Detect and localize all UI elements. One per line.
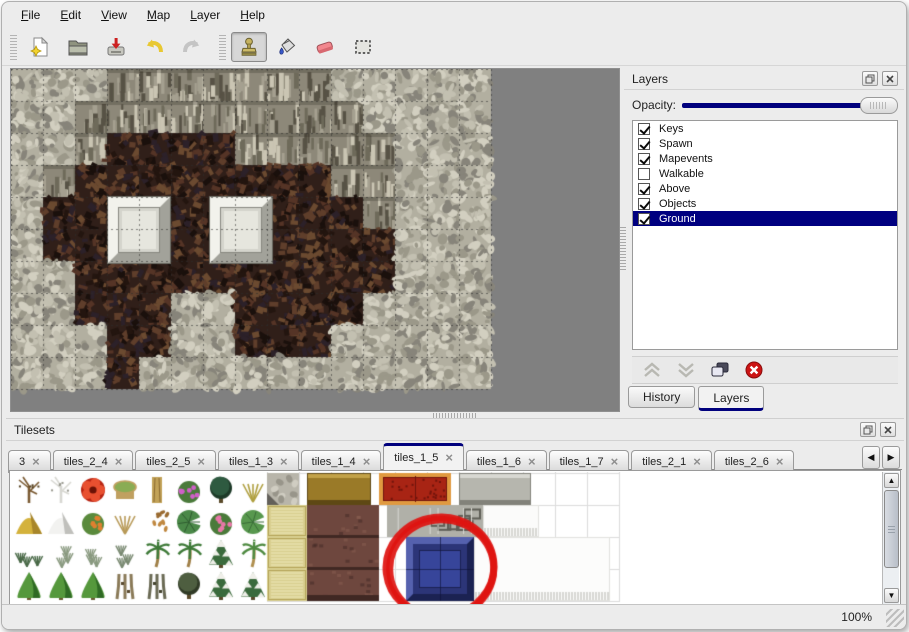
redo-button[interactable]	[174, 32, 210, 62]
layer-name: Spawn	[659, 138, 693, 150]
dock-tabs: HistoryLayers	[628, 386, 764, 412]
tab-close-icon[interactable]: ×	[611, 457, 619, 467]
scroll-up-icon[interactable]: ▲	[884, 473, 899, 488]
layer-visibility-checkbox[interactable]	[638, 153, 650, 165]
menu-item-edit[interactable]: Edit	[51, 5, 90, 25]
layer-buttons-bar	[632, 356, 898, 384]
tileset-tab-label: tiles_2_6	[725, 456, 769, 468]
layer-name: Walkable	[659, 168, 704, 180]
menu-item-map[interactable]: Map	[138, 5, 179, 25]
tileset-tab-label: tiles_1_7	[560, 456, 604, 468]
tilesets-panel: Tilesets 3×tiles_2_4×tiles_2_5×tiles_1_3…	[6, 418, 904, 608]
move-layer-up-button[interactable]	[640, 359, 664, 381]
opacity-slider-track[interactable]	[682, 103, 864, 108]
open-file-button[interactable]	[60, 32, 96, 62]
status-bar: 100%	[2, 604, 906, 629]
menu-item-layer[interactable]: Layer	[181, 5, 229, 25]
menu-item-file[interactable]: File	[12, 5, 49, 25]
layers-panel-header: Layers	[624, 68, 904, 90]
save-file-button[interactable]	[98, 32, 134, 62]
layer-row-spawn[interactable]: Spawn	[633, 136, 897, 151]
layer-visibility-checkbox[interactable]	[638, 123, 650, 135]
layer-name: Ground	[659, 213, 696, 225]
tab-close-icon[interactable]: ×	[528, 457, 536, 467]
layer-name: Keys	[659, 123, 683, 135]
duplicate-layer-button[interactable]	[708, 359, 732, 381]
layers-panel-title: Layers	[632, 72, 668, 86]
zoom-level: 100%	[841, 610, 872, 624]
tab-close-icon[interactable]: ×	[776, 457, 784, 467]
tileset-tab-label: tiles_2_4	[64, 456, 108, 468]
scroll-down-icon[interactable]: ▼	[884, 588, 899, 603]
layer-visibility-checkbox[interactable]	[638, 213, 650, 225]
float-panel-icon[interactable]	[862, 71, 878, 86]
opacity-row: Opacity:	[624, 94, 904, 116]
tab-close-icon[interactable]: ×	[197, 457, 205, 467]
move-layer-down-button[interactable]	[674, 359, 698, 381]
stamp-tool-icon	[237, 35, 261, 59]
layer-name: Objects	[659, 198, 696, 210]
tileset-tab-label: tiles_2_1	[642, 456, 686, 468]
toolbar	[2, 28, 906, 66]
layer-name: Mapevents	[659, 153, 713, 165]
layer-list: KeysSpawnMapeventsWalkableAboveObjectsGr…	[632, 120, 898, 350]
tileset-tab-label: tiles_1_4	[312, 456, 356, 468]
tileset-tab-bar: 3×tiles_2_4×tiles_2_5×tiles_1_3×tiles_1_…	[8, 443, 902, 470]
scrollbar-thumb[interactable]	[884, 490, 899, 568]
menu-item-help[interactable]: Help	[231, 5, 274, 25]
layer-visibility-checkbox[interactable]	[638, 198, 650, 210]
tab-close-icon[interactable]: ×	[280, 457, 288, 467]
tileset-tab-label: tiles_1_3	[229, 456, 273, 468]
layer-visibility-checkbox[interactable]	[638, 168, 650, 180]
layer-row-objects[interactable]: Objects	[633, 196, 897, 211]
delete-layer-button[interactable]	[742, 359, 766, 381]
toolbar-group-handle[interactable]	[219, 34, 226, 60]
opacity-slider-handle[interactable]	[860, 97, 898, 114]
resize-grip[interactable]	[886, 609, 904, 627]
dock-tab-history[interactable]: History	[628, 386, 695, 408]
select-tool-icon	[351, 35, 375, 59]
eraser-tool-icon	[313, 35, 337, 59]
new-file-button[interactable]	[22, 32, 58, 62]
fill-tool-button[interactable]	[269, 32, 305, 62]
layer-visibility-checkbox[interactable]	[638, 138, 650, 150]
save-file-icon	[104, 35, 128, 59]
tab-close-icon[interactable]: ×	[32, 457, 40, 467]
layer-row-keys[interactable]: Keys	[633, 121, 897, 136]
tilesets-panel-header: Tilesets	[6, 419, 904, 441]
tileset-tab-label: tiles_1_6	[477, 456, 521, 468]
dock-tab-layers[interactable]: Layers	[698, 386, 764, 411]
tab-close-icon[interactable]: ×	[363, 457, 371, 467]
tab-close-icon[interactable]: ×	[115, 457, 123, 467]
map-canvas[interactable]	[11, 69, 619, 411]
tileset-tab-label: 3	[19, 456, 25, 468]
select-tool-button[interactable]	[345, 32, 381, 62]
new-file-icon	[28, 35, 52, 59]
tab-scroll-left-icon[interactable]: ◀	[862, 446, 880, 469]
layer-row-mapevents[interactable]: Mapevents	[633, 151, 897, 166]
application-window: FileEditViewMapLayerHelp Layers Opacity:…	[1, 1, 907, 630]
stamp-tool-button[interactable]	[231, 32, 267, 62]
layer-row-above[interactable]: Above	[633, 181, 897, 196]
fill-tool-icon	[275, 35, 299, 59]
tab-close-icon[interactable]: ×	[445, 453, 453, 463]
tileset-content: ▲ ▼	[9, 470, 901, 606]
toolbar-group-handle[interactable]	[10, 34, 17, 60]
float-panel-icon[interactable]	[860, 422, 876, 437]
layers-panel: Layers Opacity: KeysSpawnMapeventsWalkab…	[624, 68, 904, 412]
tab-scroll-right-icon[interactable]: ▶	[882, 446, 900, 469]
opacity-label: Opacity:	[632, 98, 676, 112]
tileset-tab-label: tiles_2_5	[146, 456, 190, 468]
open-file-icon	[66, 35, 90, 59]
layer-row-walkable[interactable]: Walkable	[633, 166, 897, 181]
undo-button[interactable]	[136, 32, 172, 62]
map-view	[10, 68, 620, 412]
redo-icon	[180, 35, 204, 59]
undo-icon	[142, 35, 166, 59]
menu-bar: FileEditViewMapLayerHelp	[2, 2, 906, 28]
tileset-tab-tiles_1_5[interactable]: tiles_1_5×	[383, 443, 464, 470]
tilesets-panel-title: Tilesets	[14, 423, 55, 437]
tileset-scrollbar[interactable]: ▲ ▼	[882, 472, 899, 604]
eraser-tool-button[interactable]	[307, 32, 343, 62]
layer-row-ground[interactable]: Ground	[633, 211, 897, 226]
close-panel-icon[interactable]	[882, 71, 898, 86]
tab-close-icon[interactable]: ×	[693, 457, 701, 467]
layer-visibility-checkbox[interactable]	[638, 183, 650, 195]
layer-name: Above	[659, 183, 690, 195]
tileset-tab-label: tiles_1_5	[394, 452, 438, 464]
close-panel-icon[interactable]	[880, 422, 896, 437]
tileset-palette-canvas[interactable]	[11, 472, 883, 606]
menu-item-view[interactable]: View	[92, 5, 136, 25]
